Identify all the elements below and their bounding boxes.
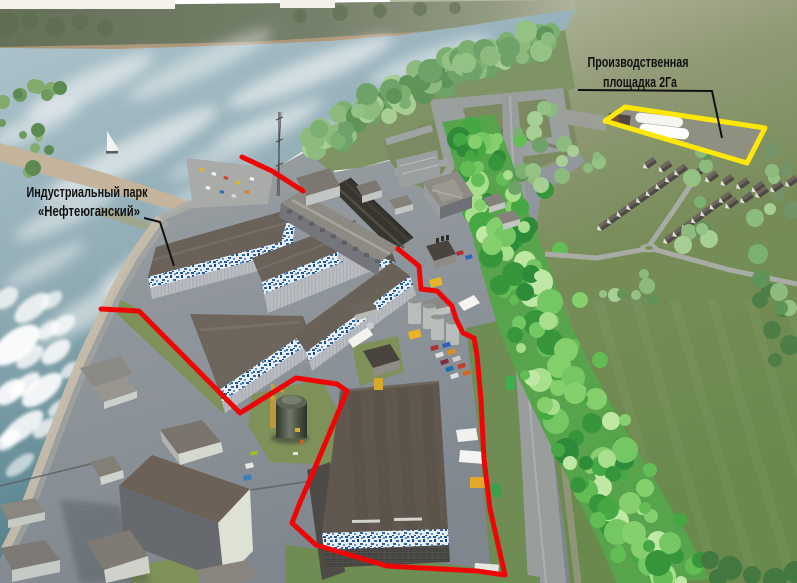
svg-text:Индустриальный парк: Индустриальный парк: [27, 184, 148, 201]
svg-text:«Нефтеюганский»: «Нефтеюганский»: [38, 203, 140, 220]
svg-text:площадка 2Га: площадка 2Га: [603, 74, 677, 91]
svg-text:Производственная: Производственная: [588, 54, 689, 71]
